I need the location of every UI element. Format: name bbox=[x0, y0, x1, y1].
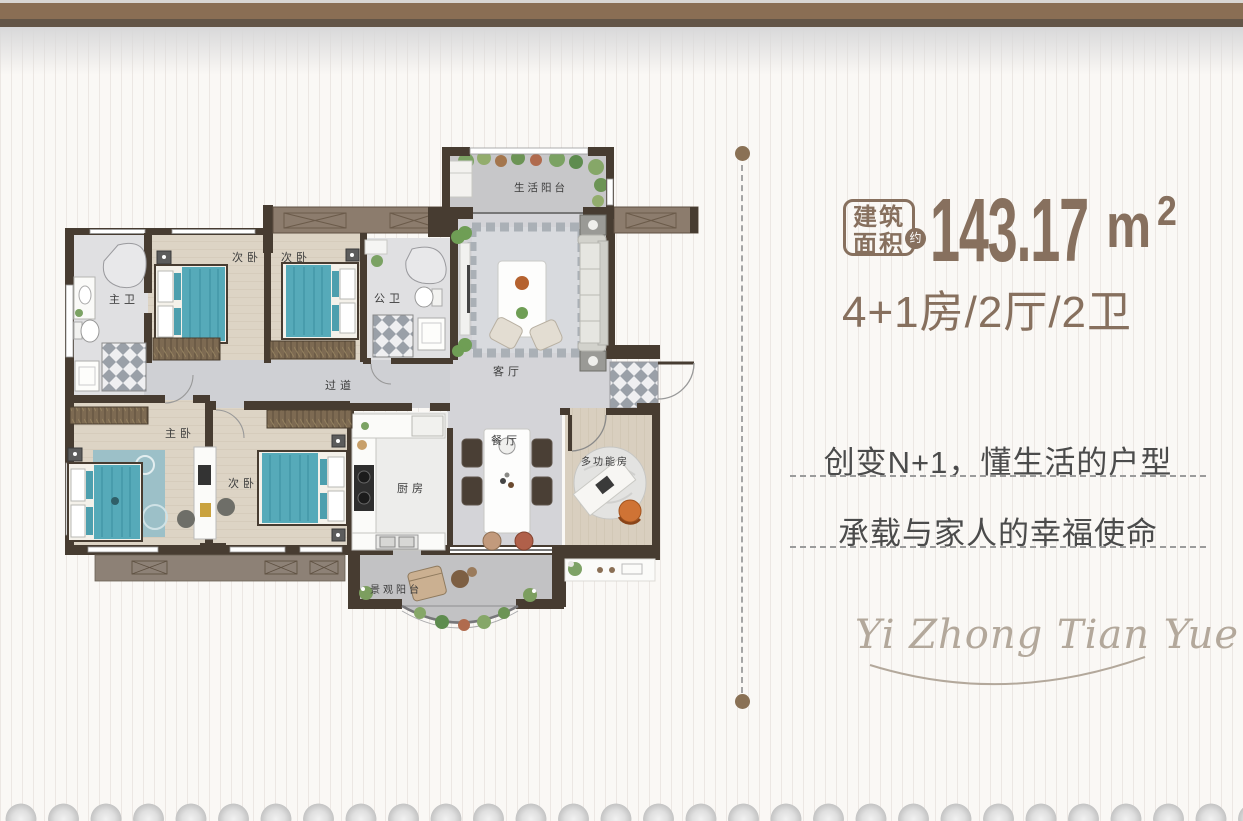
dashed-divider bbox=[741, 165, 743, 693]
label-public-bath: 公卫 bbox=[374, 293, 404, 305]
top-brown-band bbox=[0, 3, 1243, 19]
bottom-scallop-edge bbox=[0, 775, 1243, 821]
label-bedroom-4: 次卧 bbox=[228, 476, 258, 490]
area-badge-line1: 建筑 bbox=[846, 204, 912, 231]
label-living-room: 客厅 bbox=[493, 364, 523, 378]
label-kitchen: 厨房 bbox=[397, 482, 427, 495]
logo-swash bbox=[855, 655, 1155, 700]
area-badge-line2: 面积 bbox=[846, 231, 912, 258]
area-badge: 建筑 面积 约 bbox=[843, 199, 915, 256]
poster-page: 生活阳台 次卧 次卧 主卫 公卫 过道 客厅 主卧 次卧 厨房 餐厅 多功能房 … bbox=[0, 0, 1243, 821]
area-unit-sup: 2 bbox=[1157, 190, 1177, 232]
brand-logo-script: Yi Zhong Tian Yue bbox=[855, 612, 1155, 658]
tagline-1-underline bbox=[790, 475, 1206, 477]
approx-circle: 约 bbox=[905, 228, 926, 249]
label-corridor: 过道 bbox=[325, 378, 355, 392]
floorplan: 生活阳台 次卧 次卧 主卫 公卫 过道 客厅 主卧 次卧 厨房 餐厅 多功能房 … bbox=[60, 145, 700, 655]
layout-spec: 4+1房/2厅/2卫 bbox=[842, 291, 1132, 335]
label-bedroom-3: 次卧 bbox=[281, 250, 311, 264]
label-multi-function: 多功能房 bbox=[581, 455, 629, 468]
label-bedroom-2: 次卧 bbox=[232, 250, 262, 264]
area-unit: m bbox=[1106, 196, 1151, 258]
label-life-balcony: 生活阳台 bbox=[514, 181, 568, 194]
label-dining-room: 餐厅 bbox=[491, 433, 521, 447]
top-gradient bbox=[0, 27, 1243, 79]
tagline-2-underline bbox=[790, 546, 1206, 548]
area-value: 143.17 bbox=[930, 186, 1088, 276]
label-view-balcony: 景观阳台 bbox=[370, 583, 422, 596]
divider-dot-bottom bbox=[735, 694, 750, 709]
divider-dot-top bbox=[735, 146, 750, 161]
label-master-bedroom: 主卧 bbox=[165, 427, 195, 440]
top-dark-band bbox=[0, 19, 1243, 27]
label-master-bath: 主卫 bbox=[109, 293, 139, 306]
